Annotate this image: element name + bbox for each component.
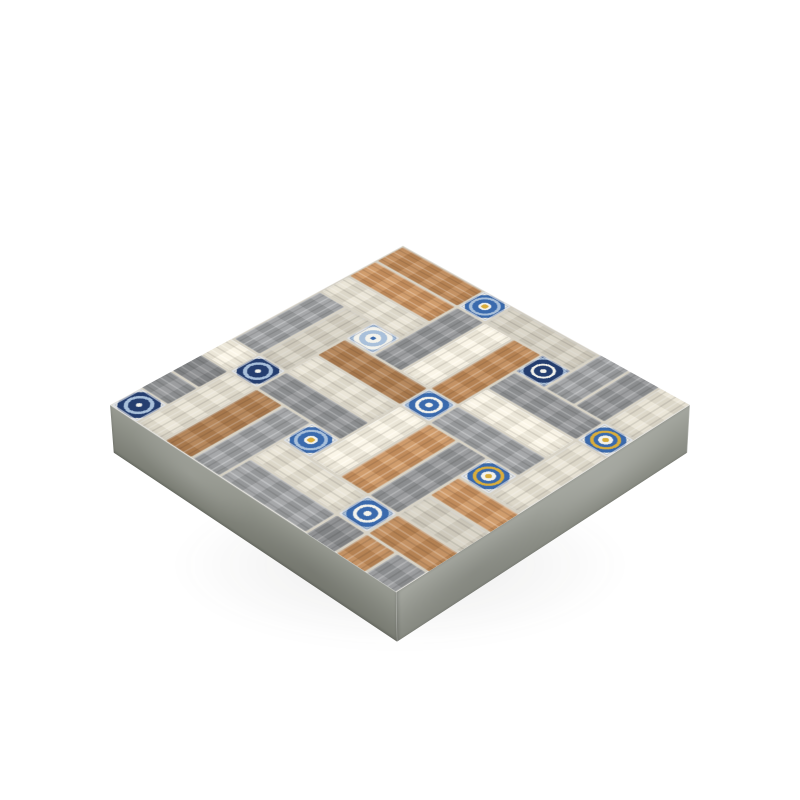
product-photo-canvas: [0, 0, 800, 800]
deco-inlay-tile-star: [283, 423, 339, 457]
wood-plank: [370, 441, 486, 512]
wood-plank: [341, 424, 456, 494]
wood-plank: [431, 406, 545, 475]
wood-plank: [312, 406, 427, 475]
deco-inlay-tile-arab-gold: [460, 459, 517, 494]
wood-plank: [193, 406, 310, 475]
deco-inlay-tile-damask-blue: [339, 496, 397, 532]
wood-plank: [253, 441, 366, 512]
